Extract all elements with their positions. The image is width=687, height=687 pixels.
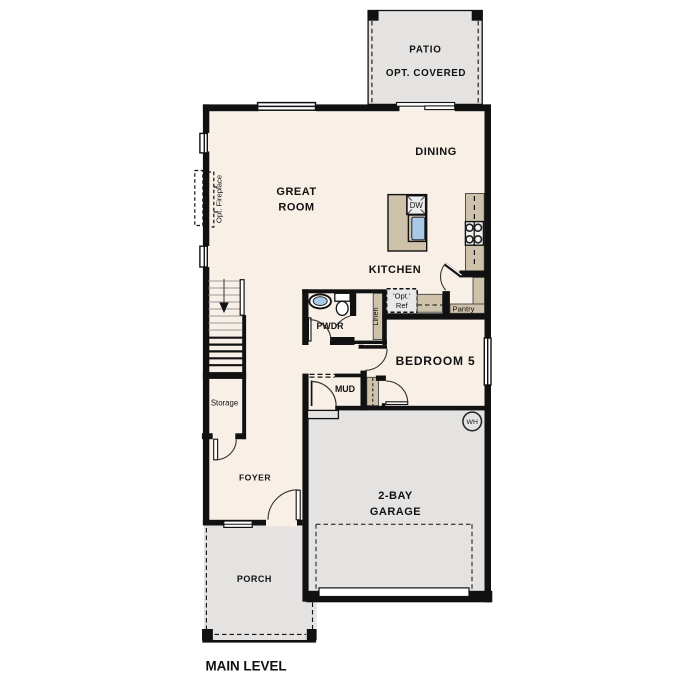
svg-text:GREAT: GREAT [276,186,316,198]
svg-text:2-BAY: 2-BAY [378,490,413,502]
svg-text:Opt. Fireplace: Opt. Fireplace [215,175,224,223]
svg-text:PWDR: PWDR [317,321,345,331]
svg-text:FOYER: FOYER [239,473,271,483]
svg-text:GARAGE: GARAGE [370,506,421,518]
svg-text:DW: DW [410,201,424,210]
svg-text:MUD: MUD [335,384,355,394]
svg-text:OPT. COVERED: OPT. COVERED [386,68,466,79]
svg-text:MAIN LEVEL: MAIN LEVEL [206,658,287,673]
svg-text:Ref: Ref [396,301,409,310]
svg-text:DINING: DINING [415,146,457,158]
svg-text:PORCH: PORCH [237,574,272,584]
svg-text:KITCHEN: KITCHEN [369,264,421,276]
svg-text:ROOM: ROOM [278,201,314,213]
svg-text:PATIO: PATIO [409,45,441,56]
svg-text:BEDROOM 5: BEDROOM 5 [396,354,476,368]
svg-text:'Opt.': 'Opt.' [393,292,411,301]
svg-text:Storage: Storage [211,399,238,408]
svg-text:Pantry: Pantry [453,305,475,314]
svg-text:Linen: Linen [371,307,380,325]
svg-text:WH: WH [467,419,478,426]
